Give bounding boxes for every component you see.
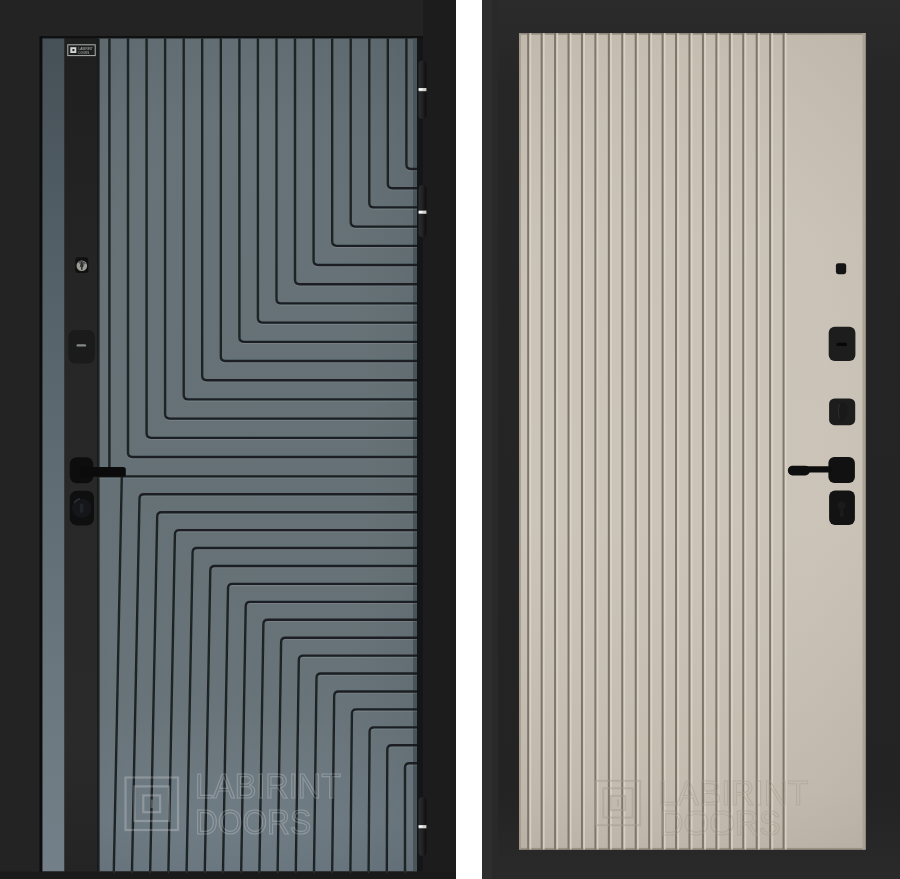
svg-text:DOORS: DOORS: [195, 803, 311, 841]
svg-text:LABIRINT: LABIRINT: [195, 767, 341, 805]
svg-text:DOORS: DOORS: [79, 51, 90, 55]
svg-text:DOORS: DOORS: [659, 803, 780, 842]
